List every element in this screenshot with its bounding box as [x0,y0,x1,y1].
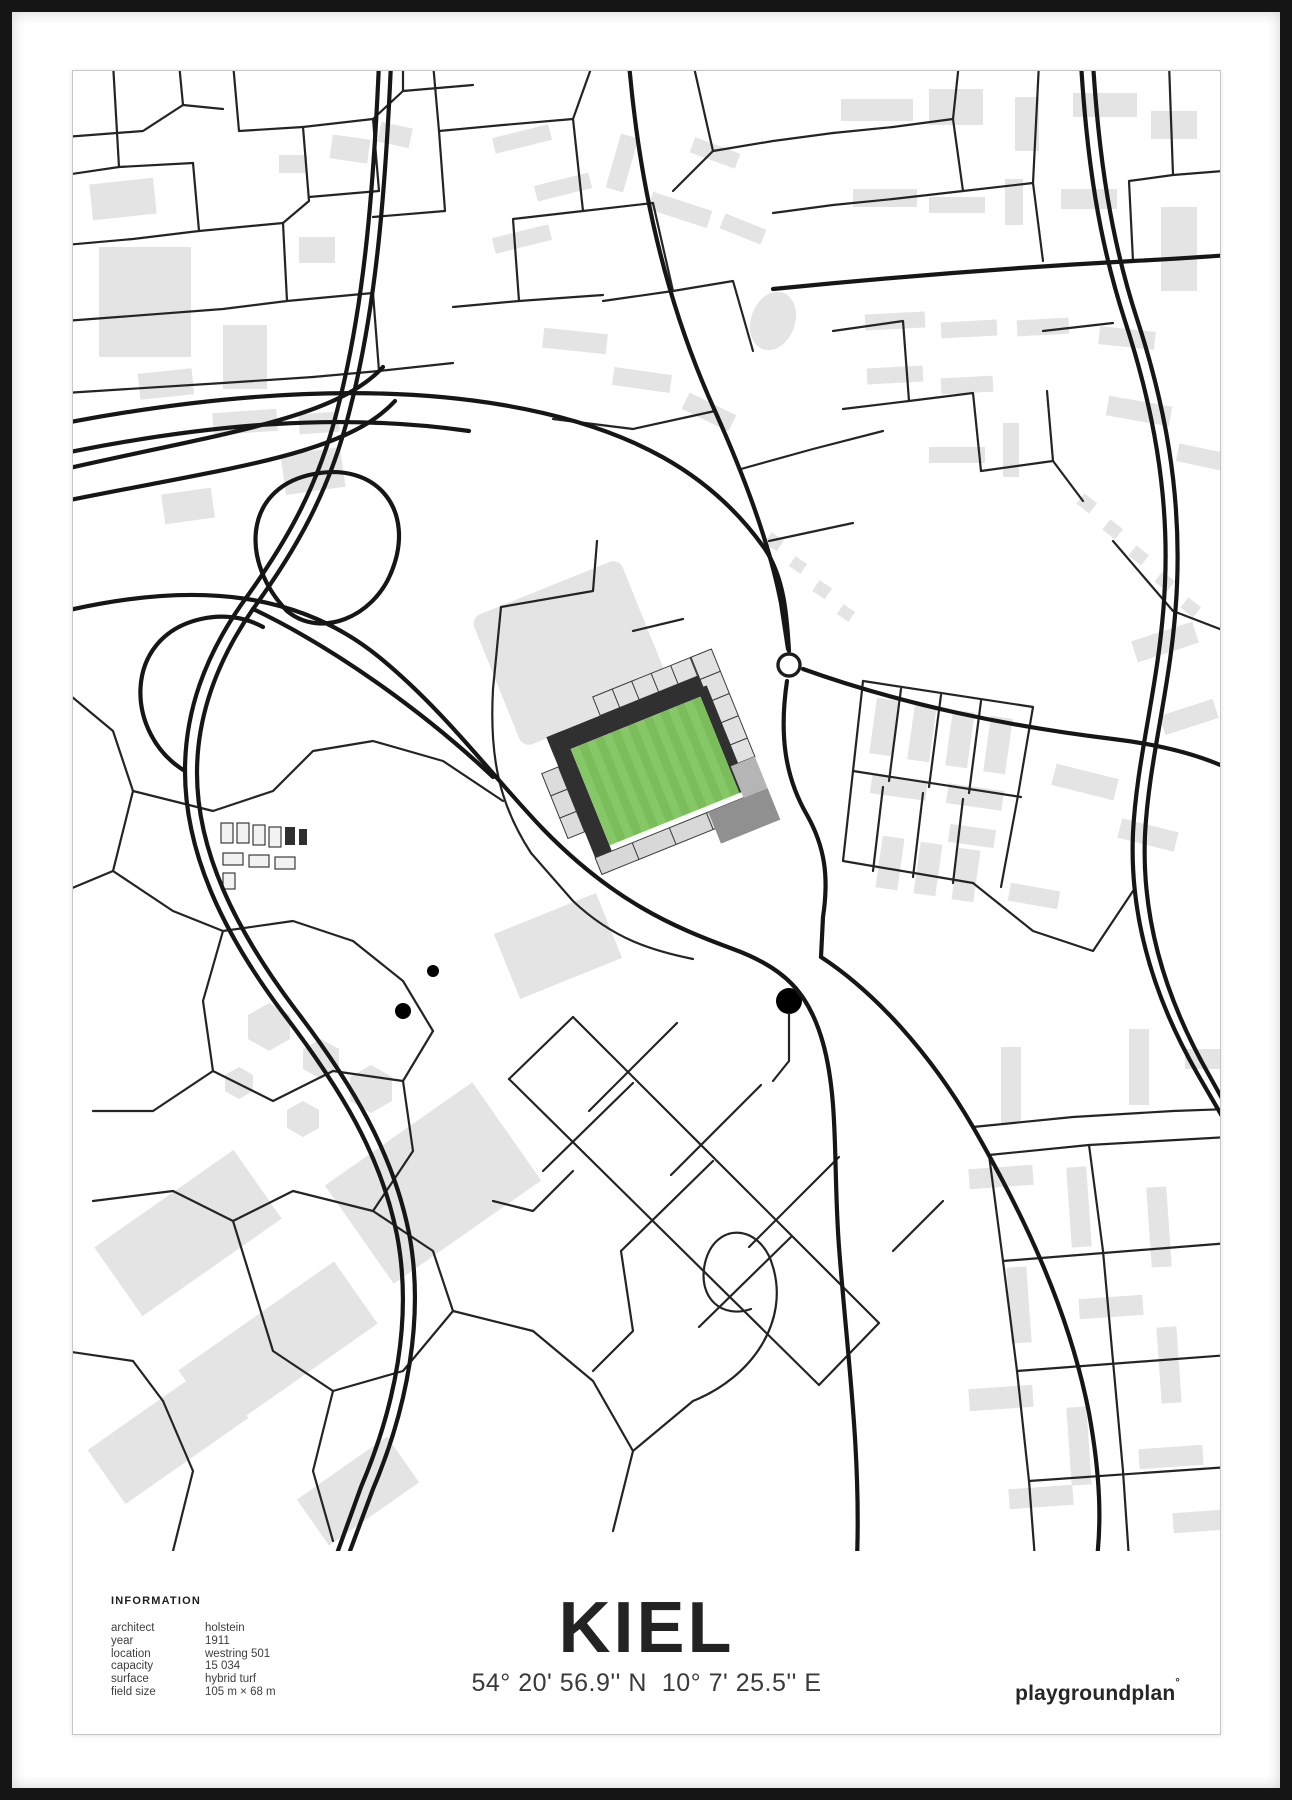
brand-degree-mark: ° [1175,1677,1180,1689]
road-southeast [821,957,1099,1551]
framed-stadium-map-poster: { "poster": { "title": "KIEL", "coordina… [0,0,1292,1800]
road-east-of-roundabout [803,669,1220,767]
map-area [73,71,1220,1551]
map-svg [73,71,1220,1551]
poster-sheet: INFORMATION architect holstein year 1911… [72,70,1221,1735]
roundabout [778,654,800,676]
poster-title: KIEL [73,1587,1220,1669]
brand-logo: playgroundplan° [1015,1677,1180,1706]
